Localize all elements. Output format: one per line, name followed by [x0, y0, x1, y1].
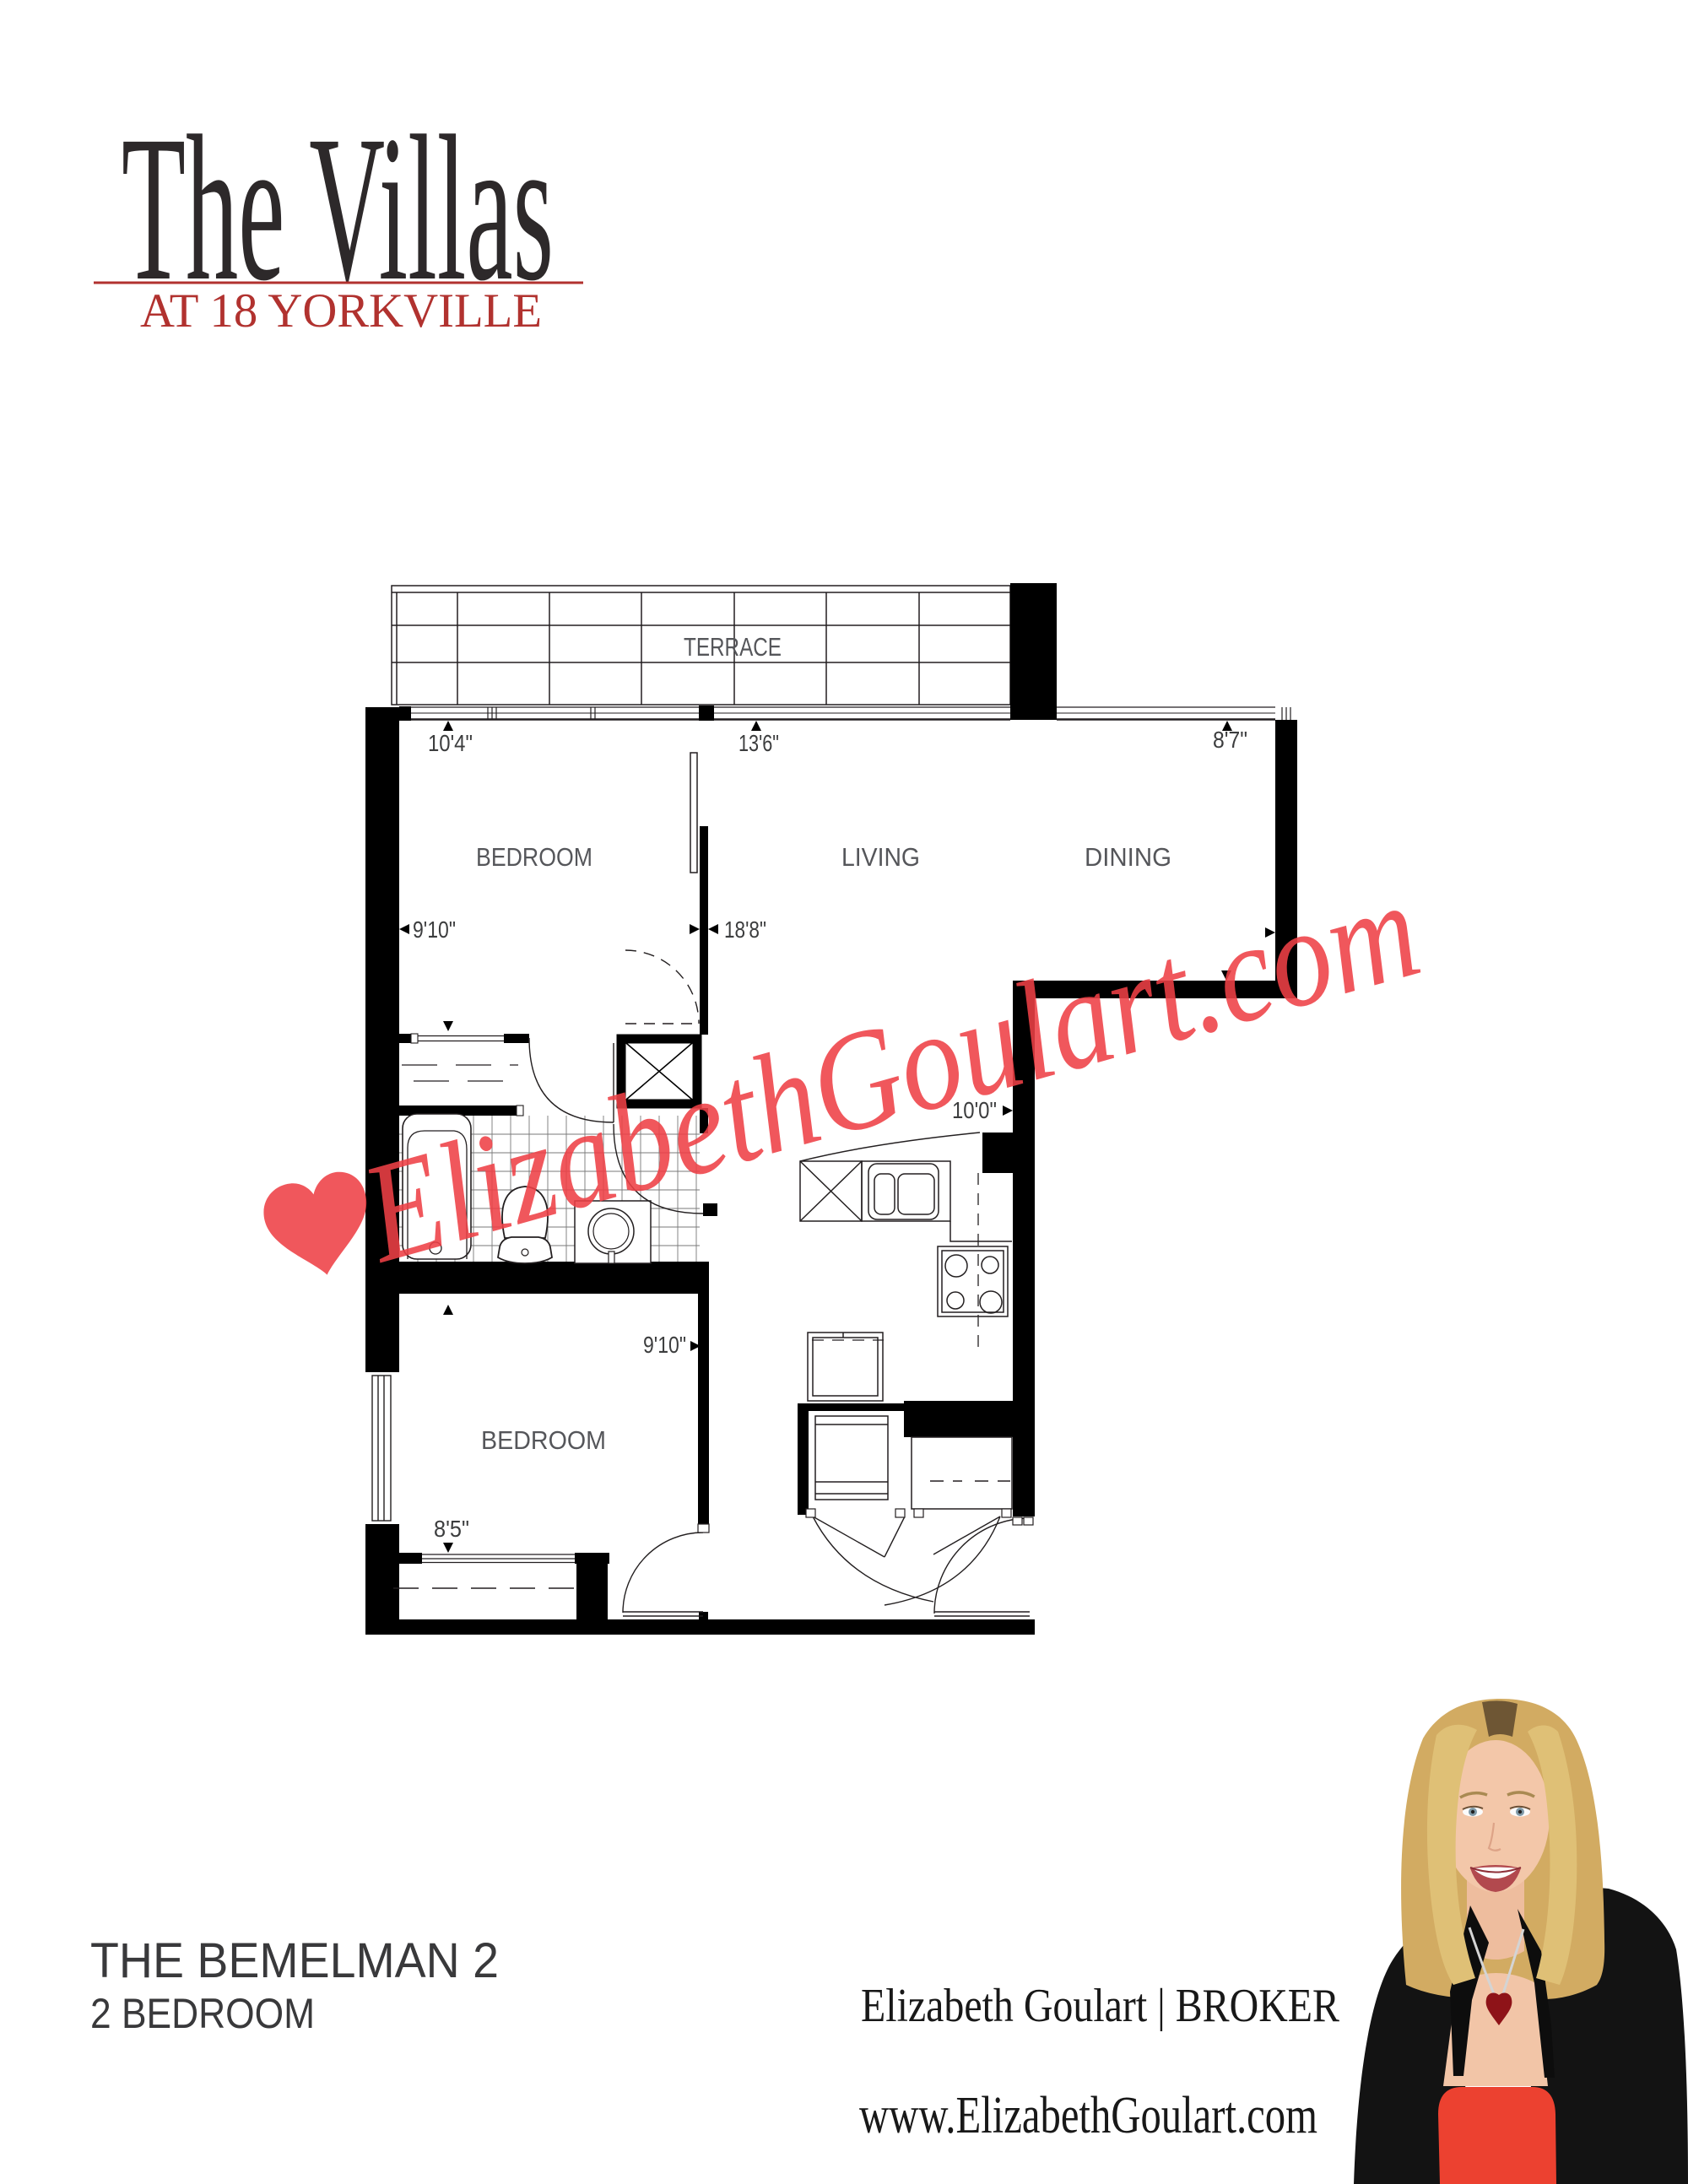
svg-text:9'10": 9'10" [413, 916, 456, 943]
svg-text:Elizabeth Goulart | BROKER: Elizabeth Goulart | BROKER [861, 1980, 1340, 2032]
svg-text:8'5": 8'5" [434, 1516, 469, 1542]
svg-text:BEDROOM: BEDROOM [481, 1425, 606, 1455]
svg-text:10'4": 10'4" [428, 730, 473, 756]
svg-text:8'7": 8'7" [1213, 727, 1247, 753]
svg-text:LIVING: LIVING [841, 842, 920, 872]
svg-text:www.ElizabethGoulart.com: www.ElizabethGoulart.com [859, 2087, 1317, 2144]
svg-text:2 BEDROOM: 2 BEDROOM [90, 1990, 315, 2037]
svg-text:BEDROOM: BEDROOM [476, 842, 592, 872]
svg-text:AT 18 YORKVILLE: AT 18 YORKVILLE [140, 284, 542, 338]
svg-text:9'10": 9'10" [643, 1332, 686, 1358]
svg-text:TERRACE: TERRACE [684, 632, 782, 662]
svg-text:18'8": 18'8" [724, 916, 766, 943]
svg-text:THE BEMELMAN 2: THE BEMELMAN 2 [90, 1933, 499, 1988]
svg-text:DINING: DINING [1085, 842, 1171, 872]
svg-text:13'6": 13'6" [738, 730, 779, 756]
